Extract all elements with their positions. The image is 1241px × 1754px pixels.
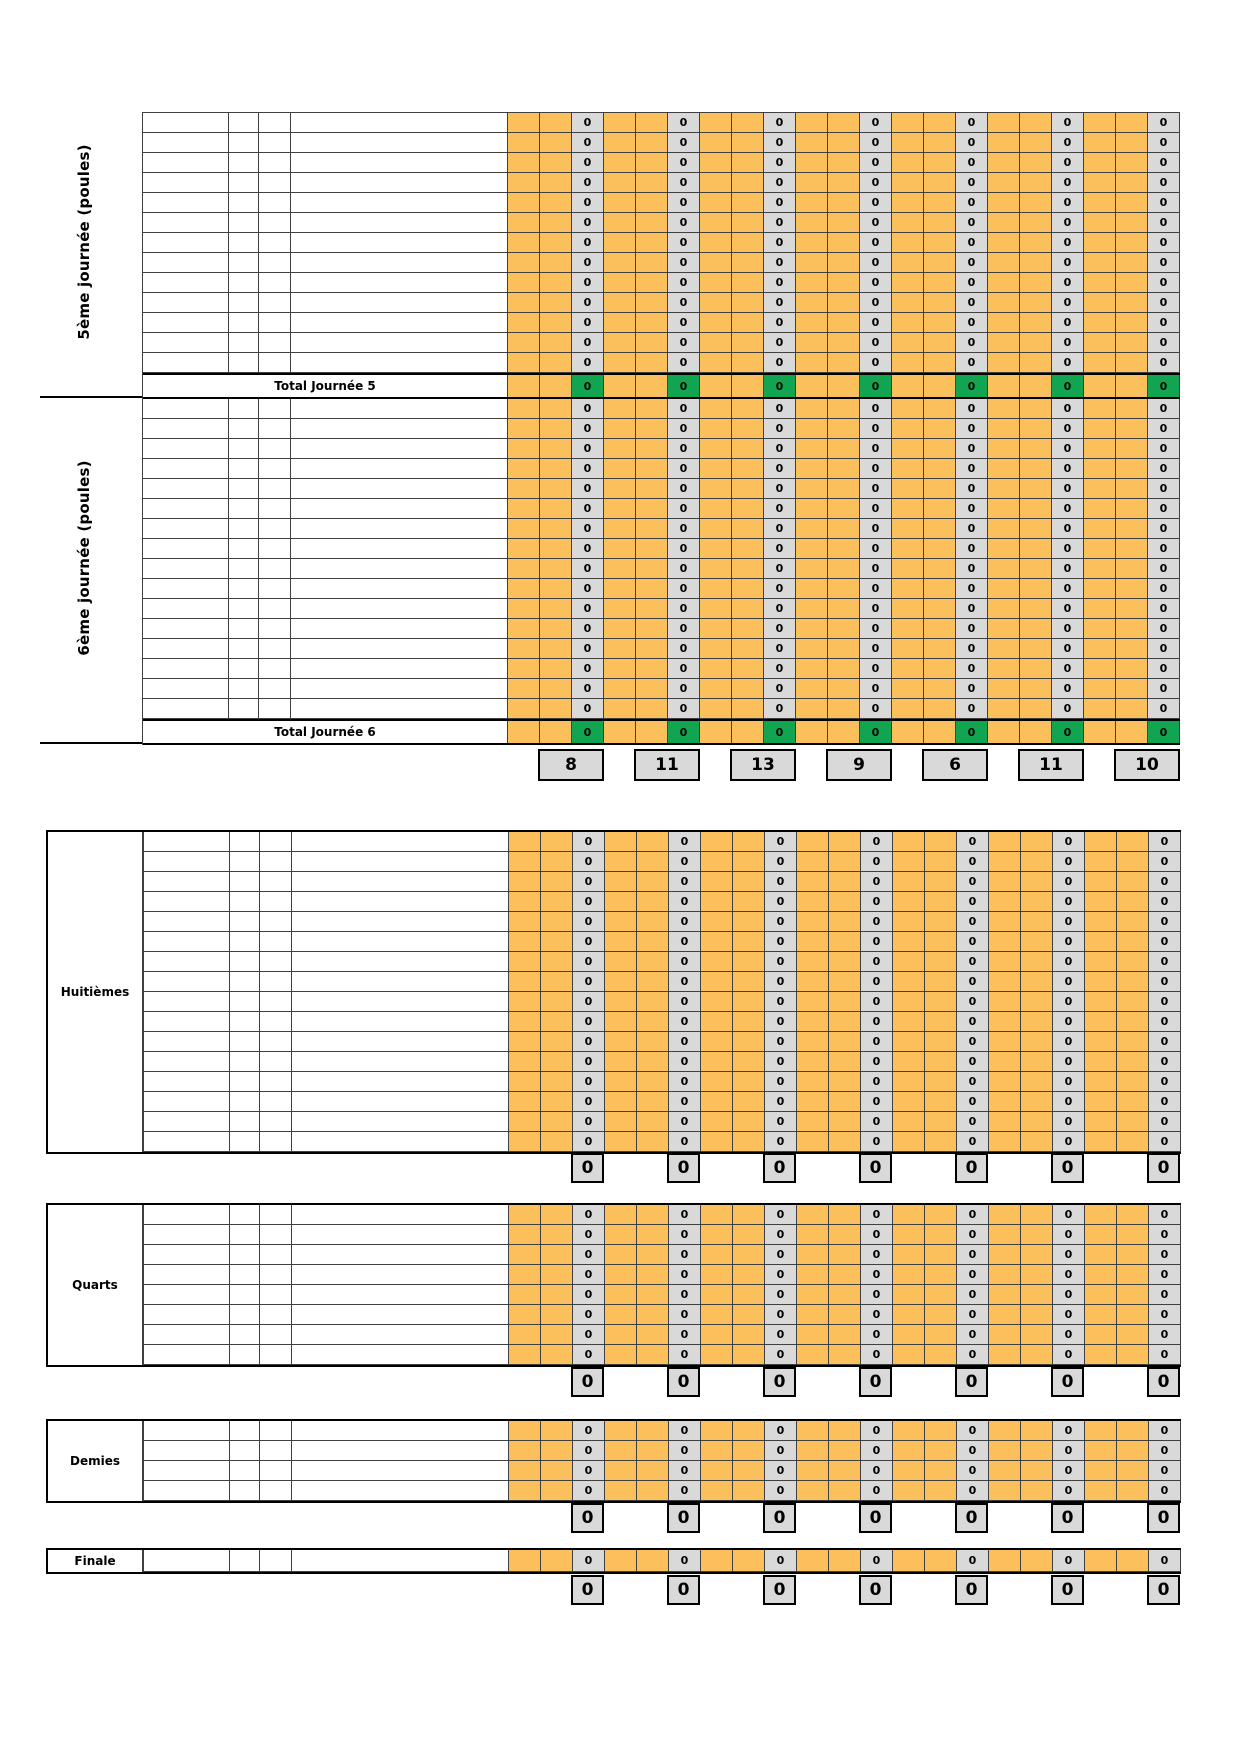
points-value-cell[interactable]: 0 bbox=[765, 1132, 797, 1152]
bonus-entry-cell[interactable] bbox=[1085, 1305, 1117, 1325]
small-entry-cell[interactable] bbox=[259, 273, 291, 293]
bonus-entry-cell[interactable] bbox=[701, 952, 733, 972]
bonus-entry-cell[interactable] bbox=[988, 173, 1020, 193]
bonus-entry-cell[interactable] bbox=[829, 992, 861, 1012]
bonus-entry-cell[interactable] bbox=[925, 972, 957, 992]
bonus-entry-cell[interactable] bbox=[605, 1032, 637, 1052]
bonus-entry-cell[interactable] bbox=[1117, 1032, 1149, 1052]
bonus-entry-cell[interactable] bbox=[829, 1092, 861, 1112]
bonus-entry-cell[interactable] bbox=[1020, 439, 1052, 459]
bonus-entry-cell[interactable] bbox=[605, 1225, 637, 1245]
bonus-entry-cell[interactable] bbox=[829, 932, 861, 952]
small-entry-cell[interactable] bbox=[259, 599, 291, 619]
points-value-cell[interactable]: 0 bbox=[765, 1032, 797, 1052]
bonus-entry-cell[interactable] bbox=[1085, 1052, 1117, 1072]
bonus-entry-cell[interactable] bbox=[701, 1325, 733, 1345]
bonus-entry-cell[interactable] bbox=[732, 399, 764, 419]
bonus-entry-cell[interactable] bbox=[924, 439, 956, 459]
points-value-cell[interactable]: 0 bbox=[861, 992, 893, 1012]
bonus-entry-cell[interactable] bbox=[1117, 1325, 1149, 1345]
bonus-entry-cell[interactable] bbox=[893, 1032, 925, 1052]
round-total-cell[interactable]: 0 bbox=[859, 1153, 892, 1183]
bonus-entry-cell[interactable] bbox=[893, 1305, 925, 1325]
bonus-entry-cell[interactable] bbox=[637, 1441, 669, 1461]
bonus-entry-cell[interactable] bbox=[1117, 832, 1149, 852]
bonus-entry-cell[interactable] bbox=[1084, 459, 1116, 479]
bonus-entry-cell[interactable] bbox=[605, 852, 637, 872]
points-value-cell[interactable]: 0 bbox=[669, 1092, 701, 1112]
bonus-entry-cell[interactable] bbox=[1117, 1550, 1149, 1572]
bonus-entry-cell[interactable] bbox=[637, 1205, 669, 1225]
small-entry-cell[interactable] bbox=[229, 699, 259, 719]
points-value-cell[interactable]: 0 bbox=[1052, 273, 1084, 293]
round-total-cell[interactable]: 0 bbox=[859, 1575, 892, 1605]
match-detail-cell[interactable] bbox=[291, 419, 508, 439]
points-value-cell[interactable]: 0 bbox=[573, 1345, 605, 1365]
team-name-cell[interactable] bbox=[143, 193, 229, 213]
points-value-cell[interactable]: 0 bbox=[764, 113, 796, 133]
bonus-entry-cell[interactable] bbox=[509, 1481, 541, 1501]
points-value-cell[interactable]: 0 bbox=[861, 1481, 893, 1501]
bonus-entry-cell[interactable] bbox=[989, 1345, 1021, 1365]
points-value-cell[interactable]: 0 bbox=[669, 1132, 701, 1152]
bonus-entry-cell[interactable] bbox=[1116, 273, 1148, 293]
bonus-entry-cell[interactable] bbox=[828, 233, 860, 253]
points-value-cell[interactable]: 0 bbox=[764, 153, 796, 173]
bonus-entry-cell[interactable] bbox=[1021, 872, 1053, 892]
points-value-cell[interactable]: 0 bbox=[861, 932, 893, 952]
bonus-entry-cell[interactable] bbox=[733, 1072, 765, 1092]
bonus-entry-cell[interactable] bbox=[1085, 972, 1117, 992]
match-detail-cell[interactable] bbox=[291, 539, 508, 559]
points-value-cell[interactable]: 0 bbox=[669, 1205, 701, 1225]
bonus-entry-cell[interactable] bbox=[989, 872, 1021, 892]
bonus-entry-cell[interactable] bbox=[700, 113, 732, 133]
points-value-cell[interactable]: 0 bbox=[572, 619, 604, 639]
small-entry-cell[interactable] bbox=[259, 293, 291, 313]
bonus-entry-cell[interactable] bbox=[1085, 1461, 1117, 1481]
bonus-entry-cell[interactable] bbox=[828, 399, 860, 419]
points-value-cell[interactable]: 0 bbox=[957, 1550, 989, 1572]
bonus-entry-cell[interactable] bbox=[733, 1461, 765, 1481]
points-value-cell[interactable]: 0 bbox=[957, 1225, 989, 1245]
bonus-entry-cell[interactable] bbox=[636, 599, 668, 619]
bonus-entry-cell[interactable] bbox=[796, 439, 828, 459]
bonus-entry-cell[interactable] bbox=[1084, 273, 1116, 293]
bonus-entry-cell[interactable] bbox=[509, 852, 541, 872]
bonus-entry-cell[interactable] bbox=[892, 639, 924, 659]
points-value-cell[interactable]: 0 bbox=[1052, 113, 1084, 133]
points-value-cell[interactable]: 0 bbox=[764, 619, 796, 639]
points-value-cell[interactable]: 0 bbox=[669, 1325, 701, 1345]
small-entry-cell[interactable] bbox=[230, 1421, 260, 1441]
bonus-entry-cell[interactable] bbox=[892, 499, 924, 519]
bonus-entry-cell[interactable] bbox=[540, 679, 572, 699]
points-value-cell[interactable]: 0 bbox=[669, 1461, 701, 1481]
bonus-entry-cell[interactable] bbox=[1020, 699, 1052, 719]
points-value-cell[interactable]: 0 bbox=[861, 892, 893, 912]
bonus-entry-cell[interactable] bbox=[1116, 173, 1148, 193]
bonus-entry-cell[interactable] bbox=[1117, 952, 1149, 972]
points-value-cell[interactable]: 0 bbox=[668, 439, 700, 459]
bonus-entry-cell[interactable] bbox=[892, 721, 924, 743]
points-value-cell[interactable]: 0 bbox=[572, 439, 604, 459]
bonus-entry-cell[interactable] bbox=[637, 1092, 669, 1112]
bonus-entry-cell[interactable] bbox=[1020, 173, 1052, 193]
points-value-cell[interactable]: 0 bbox=[1052, 499, 1084, 519]
bonus-entry-cell[interactable] bbox=[796, 659, 828, 679]
team-name-cell[interactable] bbox=[143, 113, 229, 133]
points-value-cell[interactable]: 0 bbox=[1149, 872, 1181, 892]
bonus-entry-cell[interactable] bbox=[828, 213, 860, 233]
points-value-cell[interactable]: 0 bbox=[1148, 579, 1180, 599]
bonus-entry-cell[interactable] bbox=[1116, 619, 1148, 639]
bonus-entry-cell[interactable] bbox=[1084, 333, 1116, 353]
bonus-entry-cell[interactable] bbox=[925, 1265, 957, 1285]
points-value-cell[interactable]: 0 bbox=[764, 599, 796, 619]
points-value-cell[interactable]: 0 bbox=[1149, 1481, 1181, 1501]
bonus-entry-cell[interactable] bbox=[701, 1421, 733, 1441]
points-value-cell[interactable]: 0 bbox=[765, 952, 797, 972]
bonus-entry-cell[interactable] bbox=[1021, 1481, 1053, 1501]
match-detail-cell[interactable] bbox=[291, 233, 508, 253]
small-entry-cell[interactable] bbox=[229, 659, 259, 679]
bonus-entry-cell[interactable] bbox=[892, 193, 924, 213]
bonus-entry-cell[interactable] bbox=[1021, 1052, 1053, 1072]
small-entry-cell[interactable] bbox=[260, 852, 292, 872]
small-entry-cell[interactable] bbox=[229, 273, 259, 293]
bonus-entry-cell[interactable] bbox=[1021, 1265, 1053, 1285]
bonus-entry-cell[interactable] bbox=[797, 1461, 829, 1481]
column-grand-total[interactable]: 8 bbox=[538, 749, 604, 781]
bonus-entry-cell[interactable] bbox=[508, 375, 540, 397]
bonus-entry-cell[interactable] bbox=[893, 1245, 925, 1265]
points-value-cell[interactable]: 0 bbox=[956, 539, 988, 559]
bonus-entry-cell[interactable] bbox=[605, 972, 637, 992]
bonus-entry-cell[interactable] bbox=[1117, 1245, 1149, 1265]
points-value-cell[interactable]: 0 bbox=[668, 499, 700, 519]
small-entry-cell[interactable] bbox=[259, 353, 291, 373]
bonus-entry-cell[interactable] bbox=[636, 133, 668, 153]
points-value-cell[interactable]: 0 bbox=[573, 1112, 605, 1132]
bonus-entry-cell[interactable] bbox=[636, 679, 668, 699]
small-entry-cell[interactable] bbox=[230, 1550, 260, 1572]
team-name-cell[interactable] bbox=[144, 992, 230, 1012]
bonus-entry-cell[interactable] bbox=[1116, 459, 1148, 479]
bonus-entry-cell[interactable] bbox=[540, 399, 572, 419]
bonus-entry-cell[interactable] bbox=[828, 253, 860, 273]
bonus-entry-cell[interactable] bbox=[1084, 639, 1116, 659]
points-value-cell[interactable]: 0 bbox=[764, 193, 796, 213]
points-value-cell[interactable]: 0 bbox=[860, 499, 892, 519]
small-entry-cell[interactable] bbox=[260, 1092, 292, 1112]
bonus-entry-cell[interactable] bbox=[637, 992, 669, 1012]
bonus-entry-cell[interactable] bbox=[925, 1092, 957, 1112]
bonus-entry-cell[interactable] bbox=[700, 599, 732, 619]
bonus-entry-cell[interactable] bbox=[1116, 153, 1148, 173]
bonus-entry-cell[interactable] bbox=[1084, 439, 1116, 459]
bonus-entry-cell[interactable] bbox=[1020, 579, 1052, 599]
match-detail-cell[interactable] bbox=[292, 1205, 509, 1225]
bonus-entry-cell[interactable] bbox=[1021, 1132, 1053, 1152]
bonus-entry-cell[interactable] bbox=[988, 333, 1020, 353]
team-name-cell[interactable] bbox=[143, 499, 229, 519]
team-name-cell[interactable] bbox=[144, 912, 230, 932]
small-entry-cell[interactable] bbox=[259, 333, 291, 353]
bonus-entry-cell[interactable] bbox=[924, 699, 956, 719]
bonus-entry-cell[interactable] bbox=[925, 852, 957, 872]
small-entry-cell[interactable] bbox=[259, 699, 291, 719]
bonus-entry-cell[interactable] bbox=[828, 619, 860, 639]
points-value-cell[interactable]: 0 bbox=[1053, 932, 1085, 952]
bonus-entry-cell[interactable] bbox=[508, 253, 540, 273]
points-value-cell[interactable]: 0 bbox=[956, 193, 988, 213]
bonus-entry-cell[interactable] bbox=[700, 173, 732, 193]
points-value-cell[interactable]: 0 bbox=[1149, 852, 1181, 872]
bonus-entry-cell[interactable] bbox=[732, 113, 764, 133]
bonus-entry-cell[interactable] bbox=[892, 559, 924, 579]
bonus-entry-cell[interactable] bbox=[636, 153, 668, 173]
bonus-entry-cell[interactable] bbox=[892, 539, 924, 559]
team-name-cell[interactable] bbox=[143, 539, 229, 559]
small-entry-cell[interactable] bbox=[229, 173, 259, 193]
bonus-entry-cell[interactable] bbox=[1117, 972, 1149, 992]
points-value-cell[interactable]: 0 bbox=[1052, 333, 1084, 353]
small-entry-cell[interactable] bbox=[230, 932, 260, 952]
points-value-cell[interactable]: 0 bbox=[1148, 333, 1180, 353]
bonus-entry-cell[interactable] bbox=[1116, 519, 1148, 539]
bonus-entry-cell[interactable] bbox=[700, 479, 732, 499]
bonus-entry-cell[interactable] bbox=[605, 1421, 637, 1441]
bonus-entry-cell[interactable] bbox=[1117, 892, 1149, 912]
points-value-cell[interactable]: 0 bbox=[669, 1421, 701, 1441]
bonus-entry-cell[interactable] bbox=[700, 333, 732, 353]
bonus-entry-cell[interactable] bbox=[1085, 1421, 1117, 1441]
points-value-cell[interactable]: 0 bbox=[669, 1441, 701, 1461]
bonus-entry-cell[interactable] bbox=[893, 1092, 925, 1112]
points-value-cell[interactable]: 0 bbox=[861, 1112, 893, 1132]
bonus-entry-cell[interactable] bbox=[924, 273, 956, 293]
bonus-entry-cell[interactable] bbox=[637, 972, 669, 992]
bonus-entry-cell[interactable] bbox=[700, 375, 732, 397]
bonus-entry-cell[interactable] bbox=[508, 519, 540, 539]
bonus-entry-cell[interactable] bbox=[604, 499, 636, 519]
bonus-entry-cell[interactable] bbox=[540, 375, 572, 397]
points-value-cell[interactable]: 0 bbox=[1148, 419, 1180, 439]
bonus-entry-cell[interactable] bbox=[732, 459, 764, 479]
bonus-entry-cell[interactable] bbox=[1021, 1305, 1053, 1325]
bonus-entry-cell[interactable] bbox=[509, 1132, 541, 1152]
bonus-entry-cell[interactable] bbox=[508, 193, 540, 213]
points-value-cell[interactable]: 0 bbox=[1148, 173, 1180, 193]
match-detail-cell[interactable] bbox=[292, 852, 509, 872]
bonus-entry-cell[interactable] bbox=[541, 852, 573, 872]
bonus-entry-cell[interactable] bbox=[541, 1112, 573, 1132]
round-total-cell[interactable]: 0 bbox=[571, 1367, 604, 1397]
bonus-entry-cell[interactable] bbox=[1085, 912, 1117, 932]
small-entry-cell[interactable] bbox=[229, 213, 259, 233]
bonus-entry-cell[interactable] bbox=[1116, 213, 1148, 233]
bonus-entry-cell[interactable] bbox=[700, 721, 732, 743]
bonus-entry-cell[interactable] bbox=[1020, 133, 1052, 153]
points-value-cell[interactable]: 0 bbox=[764, 273, 796, 293]
points-value-cell[interactable]: 0 bbox=[668, 539, 700, 559]
bonus-entry-cell[interactable] bbox=[701, 1052, 733, 1072]
bonus-entry-cell[interactable] bbox=[988, 253, 1020, 273]
points-value-cell[interactable]: 0 bbox=[1149, 1265, 1181, 1285]
bonus-entry-cell[interactable] bbox=[508, 619, 540, 639]
bonus-entry-cell[interactable] bbox=[1116, 293, 1148, 313]
bonus-entry-cell[interactable] bbox=[1116, 193, 1148, 213]
small-entry-cell[interactable] bbox=[230, 1481, 260, 1501]
points-value-cell[interactable]: 0 bbox=[860, 313, 892, 333]
bonus-entry-cell[interactable] bbox=[1116, 539, 1148, 559]
bonus-entry-cell[interactable] bbox=[732, 313, 764, 333]
bonus-entry-cell[interactable] bbox=[733, 972, 765, 992]
points-value-cell[interactable]: 0 bbox=[573, 1550, 605, 1572]
points-value-cell[interactable]: 0 bbox=[669, 1032, 701, 1052]
points-value-cell[interactable]: 0 bbox=[1149, 832, 1181, 852]
bonus-entry-cell[interactable] bbox=[1084, 579, 1116, 599]
match-detail-cell[interactable] bbox=[291, 133, 508, 153]
small-entry-cell[interactable] bbox=[260, 1012, 292, 1032]
points-value-cell[interactable]: 0 bbox=[1149, 1325, 1181, 1345]
bonus-entry-cell[interactable] bbox=[925, 1012, 957, 1032]
bonus-entry-cell[interactable] bbox=[508, 699, 540, 719]
bonus-entry-cell[interactable] bbox=[1021, 1112, 1053, 1132]
points-value-cell[interactable]: 0 bbox=[860, 399, 892, 419]
team-name-cell[interactable] bbox=[143, 313, 229, 333]
points-value-cell[interactable]: 0 bbox=[1149, 1092, 1181, 1112]
match-detail-cell[interactable] bbox=[292, 1225, 509, 1245]
bonus-entry-cell[interactable] bbox=[828, 333, 860, 353]
bonus-entry-cell[interactable] bbox=[1116, 699, 1148, 719]
points-value-cell[interactable]: 0 bbox=[764, 459, 796, 479]
points-value-cell[interactable]: 0 bbox=[860, 253, 892, 273]
bonus-entry-cell[interactable] bbox=[701, 992, 733, 1012]
points-value-cell[interactable]: 0 bbox=[668, 599, 700, 619]
round-total-cell[interactable]: 0 bbox=[1147, 1367, 1180, 1397]
bonus-entry-cell[interactable] bbox=[892, 313, 924, 333]
small-entry-cell[interactable] bbox=[260, 1441, 292, 1461]
points-value-cell[interactable]: 0 bbox=[668, 133, 700, 153]
bonus-entry-cell[interactable] bbox=[636, 173, 668, 193]
team-name-cell[interactable] bbox=[144, 952, 230, 972]
bonus-entry-cell[interactable] bbox=[636, 213, 668, 233]
small-entry-cell[interactable] bbox=[230, 1325, 260, 1345]
points-value-cell[interactable]: 0 bbox=[860, 699, 892, 719]
bonus-entry-cell[interactable] bbox=[732, 233, 764, 253]
day-total-value-cell[interactable]: 0 bbox=[1052, 375, 1084, 397]
team-name-cell[interactable] bbox=[144, 1132, 230, 1152]
bonus-entry-cell[interactable] bbox=[796, 699, 828, 719]
points-value-cell[interactable]: 0 bbox=[1149, 1112, 1181, 1132]
bonus-entry-cell[interactable] bbox=[924, 519, 956, 539]
bonus-entry-cell[interactable] bbox=[925, 1072, 957, 1092]
bonus-entry-cell[interactable] bbox=[636, 559, 668, 579]
points-value-cell[interactable]: 0 bbox=[860, 539, 892, 559]
points-value-cell[interactable]: 0 bbox=[1052, 233, 1084, 253]
small-entry-cell[interactable] bbox=[259, 173, 291, 193]
bonus-entry-cell[interactable] bbox=[892, 173, 924, 193]
bonus-entry-cell[interactable] bbox=[605, 1265, 637, 1285]
points-value-cell[interactable]: 0 bbox=[1149, 932, 1181, 952]
team-name-cell[interactable] bbox=[144, 1481, 230, 1501]
bonus-entry-cell[interactable] bbox=[604, 353, 636, 373]
bonus-entry-cell[interactable] bbox=[1116, 639, 1148, 659]
bonus-entry-cell[interactable] bbox=[1085, 1205, 1117, 1225]
points-value-cell[interactable]: 0 bbox=[956, 333, 988, 353]
points-value-cell[interactable]: 0 bbox=[861, 1325, 893, 1345]
bonus-entry-cell[interactable] bbox=[989, 1461, 1021, 1481]
match-detail-cell[interactable] bbox=[291, 619, 508, 639]
small-entry-cell[interactable] bbox=[259, 153, 291, 173]
points-value-cell[interactable]: 0 bbox=[573, 1325, 605, 1345]
small-entry-cell[interactable] bbox=[259, 659, 291, 679]
day-total-value-cell[interactable]: 0 bbox=[860, 721, 892, 743]
bonus-entry-cell[interactable] bbox=[797, 1265, 829, 1285]
small-entry-cell[interactable] bbox=[229, 479, 259, 499]
bonus-entry-cell[interactable] bbox=[829, 1012, 861, 1032]
bonus-entry-cell[interactable] bbox=[540, 619, 572, 639]
bonus-entry-cell[interactable] bbox=[733, 1092, 765, 1112]
bonus-entry-cell[interactable] bbox=[1021, 1325, 1053, 1345]
bonus-entry-cell[interactable] bbox=[1085, 1441, 1117, 1461]
bonus-entry-cell[interactable] bbox=[509, 972, 541, 992]
bonus-entry-cell[interactable] bbox=[1021, 1032, 1053, 1052]
small-entry-cell[interactable] bbox=[260, 1421, 292, 1441]
bonus-entry-cell[interactable] bbox=[604, 113, 636, 133]
bonus-entry-cell[interactable] bbox=[893, 992, 925, 1012]
small-entry-cell[interactable] bbox=[259, 133, 291, 153]
bonus-entry-cell[interactable] bbox=[988, 213, 1020, 233]
small-entry-cell[interactable] bbox=[260, 1072, 292, 1092]
match-detail-cell[interactable] bbox=[291, 579, 508, 599]
bonus-entry-cell[interactable] bbox=[797, 912, 829, 932]
points-value-cell[interactable]: 0 bbox=[572, 659, 604, 679]
bonus-entry-cell[interactable] bbox=[700, 353, 732, 373]
points-value-cell[interactable]: 0 bbox=[861, 1092, 893, 1112]
bonus-entry-cell[interactable] bbox=[540, 599, 572, 619]
bonus-entry-cell[interactable] bbox=[924, 253, 956, 273]
bonus-entry-cell[interactable] bbox=[637, 912, 669, 932]
bonus-entry-cell[interactable] bbox=[989, 952, 1021, 972]
bonus-entry-cell[interactable] bbox=[732, 619, 764, 639]
small-entry-cell[interactable] bbox=[259, 619, 291, 639]
bonus-entry-cell[interactable] bbox=[1117, 1092, 1149, 1112]
bonus-entry-cell[interactable] bbox=[733, 1112, 765, 1132]
team-name-cell[interactable] bbox=[144, 1421, 230, 1441]
bonus-entry-cell[interactable] bbox=[733, 832, 765, 852]
small-entry-cell[interactable] bbox=[229, 293, 259, 313]
points-value-cell[interactable]: 0 bbox=[1148, 479, 1180, 499]
bonus-entry-cell[interactable] bbox=[508, 353, 540, 373]
day-total-value-cell[interactable]: 0 bbox=[668, 721, 700, 743]
bonus-entry-cell[interactable] bbox=[829, 972, 861, 992]
bonus-entry-cell[interactable] bbox=[1020, 233, 1052, 253]
bonus-entry-cell[interactable] bbox=[893, 1205, 925, 1225]
bonus-entry-cell[interactable] bbox=[892, 659, 924, 679]
points-value-cell[interactable]: 0 bbox=[957, 912, 989, 932]
bonus-entry-cell[interactable] bbox=[1085, 1550, 1117, 1572]
bonus-entry-cell[interactable] bbox=[1084, 519, 1116, 539]
points-value-cell[interactable]: 0 bbox=[668, 173, 700, 193]
bonus-entry-cell[interactable] bbox=[796, 721, 828, 743]
team-name-cell[interactable] bbox=[144, 852, 230, 872]
points-value-cell[interactable]: 0 bbox=[669, 1285, 701, 1305]
bonus-entry-cell[interactable] bbox=[733, 1421, 765, 1441]
points-value-cell[interactable]: 0 bbox=[956, 579, 988, 599]
